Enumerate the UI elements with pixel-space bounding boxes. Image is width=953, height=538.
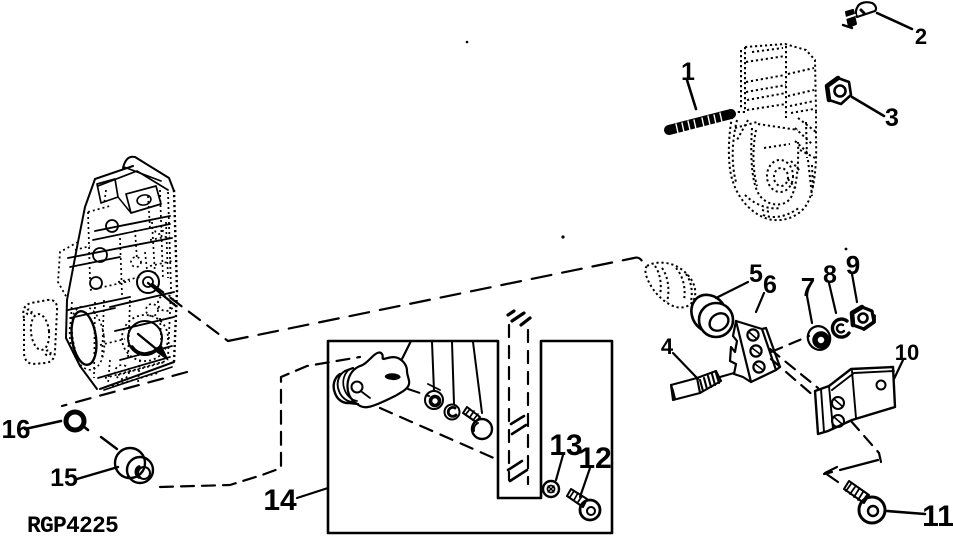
svg-text:12: 12 (578, 442, 611, 475)
svg-text:3: 3 (885, 104, 899, 132)
svg-text:10: 10 (895, 340, 919, 365)
svg-text:6: 6 (763, 271, 777, 299)
svg-text:15: 15 (50, 464, 78, 492)
svg-text:5: 5 (749, 260, 763, 288)
svg-text:14: 14 (263, 484, 297, 517)
svg-text:16: 16 (2, 414, 31, 444)
svg-text:8: 8 (823, 261, 837, 289)
svg-text:7: 7 (801, 272, 815, 302)
svg-text:1: 1 (681, 58, 695, 86)
svg-text:RGP4225: RGP4225 (27, 513, 118, 538)
svg-text:11: 11 (922, 500, 953, 533)
svg-text:2: 2 (915, 24, 927, 49)
svg-text:9: 9 (846, 250, 860, 280)
svg-text:4: 4 (661, 334, 674, 359)
